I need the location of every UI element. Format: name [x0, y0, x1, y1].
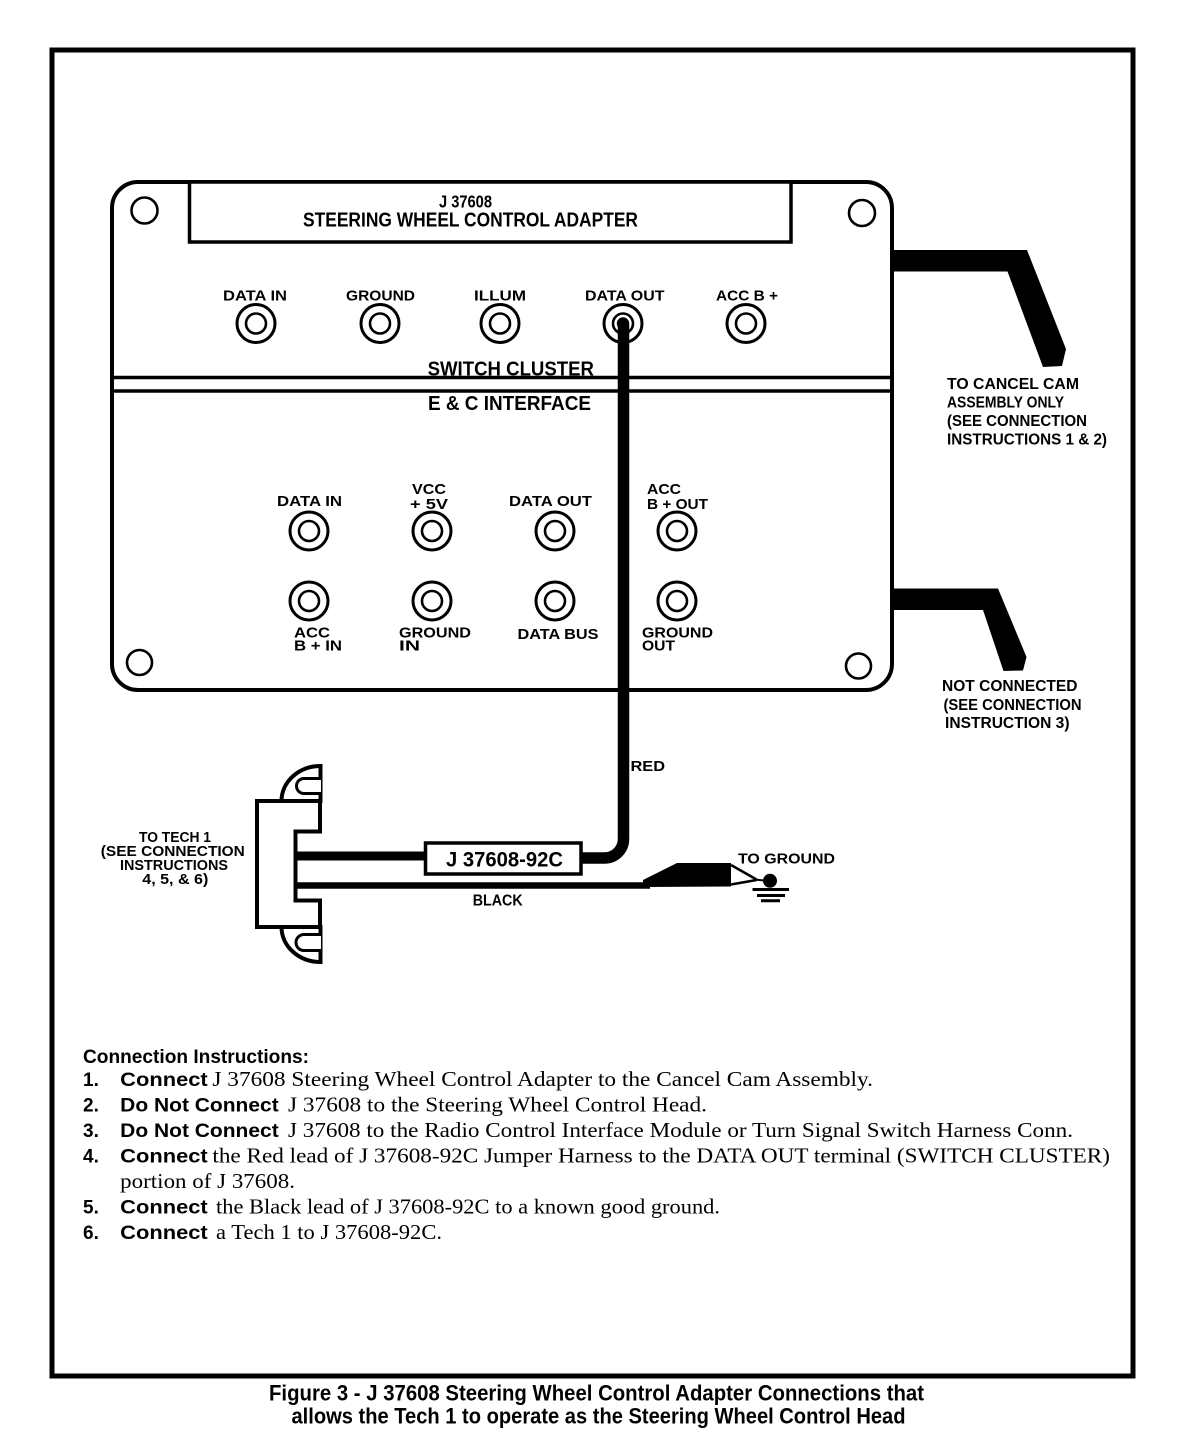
svg-text:Connect: Connect	[120, 1070, 208, 1091]
svg-text:DATA BUS: DATA BUS	[518, 626, 599, 643]
svg-text:Figure 3 - J 37608 Steering Wh: Figure 3 - J 37608 Steering Wheel Contro…	[269, 1381, 925, 1406]
svg-text:3.: 3.	[83, 1121, 99, 1142]
svg-text:J 37608 to the Radio Control I: J 37608 to the Radio Control Interface M…	[288, 1118, 1073, 1142]
svg-text:J 37608 to the Steering Wheel: J 37608 to the Steering Wheel Control He…	[288, 1093, 707, 1117]
svg-text:the Red lead of J 37608-92C Ju: the Red lead of J 37608-92C Jumper Harne…	[212, 1144, 1110, 1168]
svg-text:GROUND: GROUND	[346, 288, 415, 305]
svg-text:DATA IN: DATA IN	[277, 493, 342, 510]
svg-text:BLACK: BLACK	[473, 893, 524, 910]
svg-text:4.: 4.	[83, 1147, 99, 1168]
svg-text:E & C INTERFACE: E & C INTERFACE	[428, 393, 591, 415]
svg-text:B + OUT: B + OUT	[647, 496, 708, 513]
svg-text:TO GROUND: TO GROUND	[738, 851, 835, 868]
svg-text:(SEE CONNECTION: (SEE CONNECTION	[947, 413, 1087, 430]
svg-text:Do Not Connect: Do Not Connect	[120, 1096, 279, 1117]
svg-text:J 37608-92C: J 37608-92C	[446, 849, 563, 872]
svg-text:B + IN: B + IN	[294, 638, 342, 655]
svg-text:1.: 1.	[83, 1070, 99, 1091]
svg-text:INSTRUCTION 3): INSTRUCTION 3)	[945, 715, 1070, 732]
svg-text:4, 5, & 6): 4, 5, & 6)	[142, 872, 208, 888]
svg-text:a Tech 1 to J 37608-92C.: a Tech 1 to J 37608-92C.	[216, 1220, 442, 1244]
svg-text:RED: RED	[631, 758, 666, 775]
svg-text:DATA OUT: DATA OUT	[509, 493, 592, 510]
svg-text:6.: 6.	[83, 1223, 99, 1244]
svg-text:portion of J 37608.: portion of J 37608.	[120, 1169, 295, 1193]
svg-text:+ 5V: + 5V	[410, 496, 448, 513]
svg-text:(SEE CONNECTION: (SEE CONNECTION	[944, 697, 1082, 714]
svg-text:Connection Instructions:: Connection Instructions:	[83, 1047, 309, 1068]
svg-text:Connect: Connect	[120, 1198, 208, 1219]
svg-text:5.: 5.	[83, 1198, 99, 1219]
svg-text:Connect: Connect	[120, 1147, 208, 1168]
svg-text:OUT: OUT	[642, 638, 675, 655]
svg-text:Connect: Connect	[120, 1223, 208, 1244]
svg-text:INSTRUCTIONS 1 & 2): INSTRUCTIONS 1 & 2)	[947, 432, 1107, 449]
svg-text:ILLUM: ILLUM	[474, 288, 526, 305]
svg-text:DATA OUT: DATA OUT	[585, 288, 665, 305]
svg-text:ACC B +: ACC B +	[716, 288, 778, 305]
svg-text:J 37608 Steering Wheel Control: J 37608 Steering Wheel Control Adapter t…	[212, 1067, 873, 1091]
svg-text:NOT CONNECTED: NOT CONNECTED	[942, 678, 1078, 695]
svg-text:DATA IN: DATA IN	[223, 288, 287, 305]
svg-text:Do Not Connect: Do Not Connect	[120, 1121, 279, 1142]
svg-text:TO CANCEL CAM: TO CANCEL CAM	[947, 376, 1079, 393]
svg-text:the Black lead of J 37608-92C: the Black lead of J 37608-92C to a known…	[216, 1195, 720, 1219]
svg-text:allows the Tech 1 to operate a: allows the Tech 1 to operate as the Stee…	[292, 1404, 906, 1429]
svg-text:IN: IN	[399, 638, 420, 655]
svg-text:ASSEMBLY ONLY: ASSEMBLY ONLY	[947, 395, 1065, 412]
svg-text:STEERING WHEEL CONTROL ADAPTER: STEERING WHEEL CONTROL ADAPTER	[303, 209, 638, 231]
svg-text:2.: 2.	[83, 1096, 99, 1117]
